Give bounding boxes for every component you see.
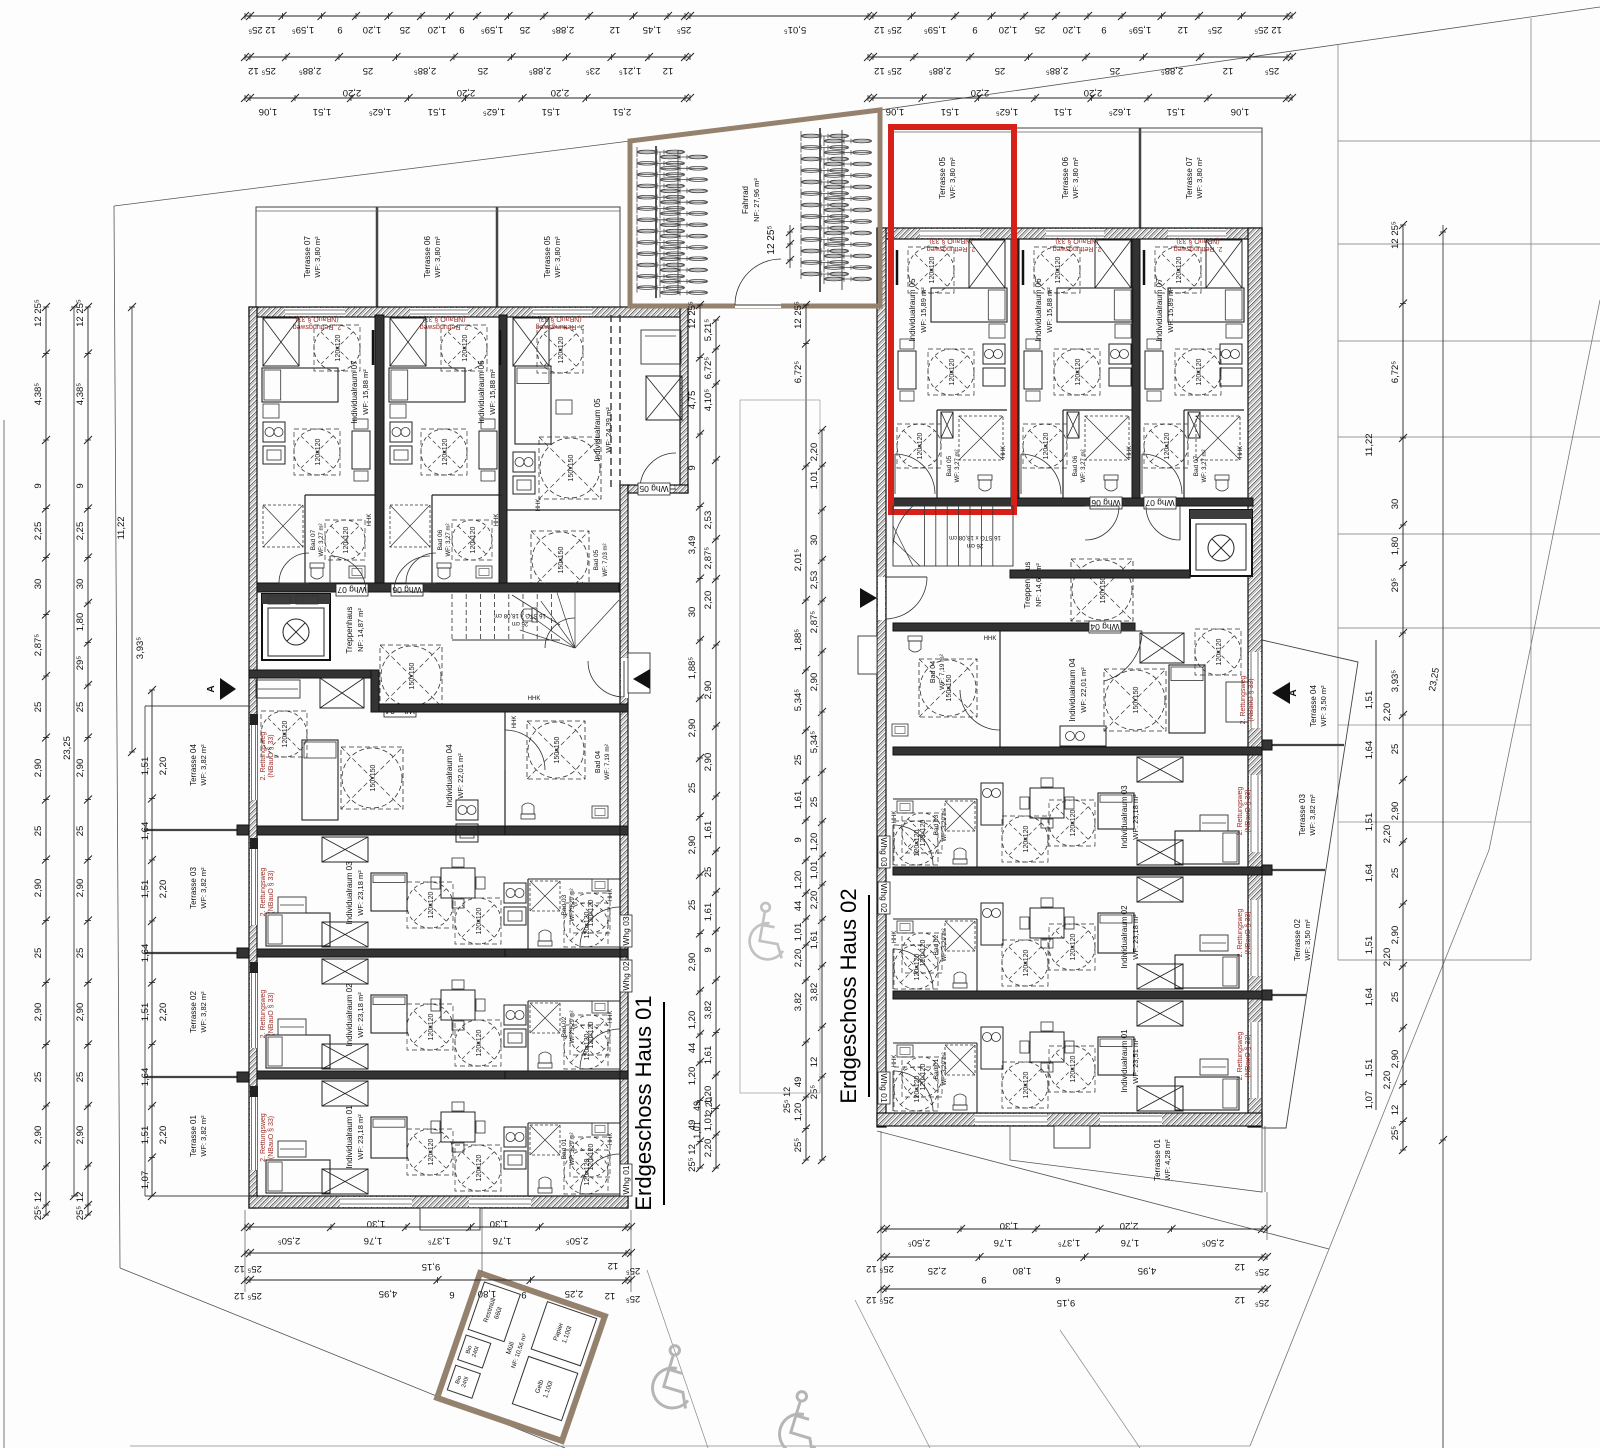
svg-text:2,90: 2,90 [75,759,86,778]
svg-text:2,25: 2,25 [75,522,86,541]
svg-text:1,61: 1,61 [703,1046,714,1065]
svg-text:2,20: 2,20 [809,891,820,910]
svg-text:2. Rettungsweg: 2. Rettungsweg [927,245,976,252]
svg-text:HHK: HHK [1001,446,1007,459]
svg-text:12: 12 [1178,24,1189,35]
svg-text:2,20: 2,20 [703,1139,714,1158]
svg-text:2,88⁵: 2,88⁵ [1161,65,1183,76]
svg-text:120x120: 120x120 [1055,256,1062,283]
svg-text:23,25: 23,25 [62,736,73,760]
svg-text:WF: 3,27 m²: WF: 3,27 m² [319,523,325,556]
svg-text:Whg 02: Whg 02 [879,883,889,913]
svg-text:2,20: 2,20 [703,591,714,610]
svg-text:1,01: 1,01 [809,861,820,880]
svg-text:16 STG x 18,08 cm: 16 STG x 18,08 cm [949,534,1001,540]
svg-text:25: 25 [33,948,44,959]
svg-text:150x150: 150x150 [554,736,561,763]
svg-text:2,90: 2,90 [33,1126,44,1145]
svg-text:4,75: 4,75 [687,391,698,410]
svg-text:1,20: 1,20 [687,1067,698,1086]
svg-text:25⁵: 25⁵ [1390,1126,1401,1141]
svg-text:25: 25 [33,826,44,837]
svg-text:Bad 07: Bad 07 [310,529,317,550]
svg-text:120x120: 120x120 [1196,358,1203,385]
svg-text:Fahrrad: Fahrrad [741,186,750,214]
svg-text:Individualraum 07: Individualraum 07 [350,360,359,424]
svg-text:Whg 06: Whg 06 [1091,498,1121,508]
svg-text:25⁵ 12: 25⁵ 12 [874,65,902,76]
svg-text:9: 9 [459,24,464,35]
svg-text:2. Rettungsweg: 2. Rettungsweg [1174,245,1223,252]
svg-text:120x120: 120x120 [335,334,342,361]
svg-text:12: 12 [663,65,674,76]
svg-text:49: 49 [793,1077,804,1088]
svg-text:WF: 3,29 m²: WF: 3,29 m² [570,1010,576,1043]
svg-text:WF: 3,82 m²: WF: 3,82 m² [199,867,208,909]
svg-text:(NBauO § 33): (NBauO § 33) [1245,1034,1252,1077]
svg-text:2,20: 2,20 [158,757,169,776]
svg-text:NF: 14,66 m²: NF: 14,66 m² [1034,563,1043,607]
svg-text:Terrasse 02: Terrasse 02 [1293,919,1302,961]
svg-text:1,51: 1,51 [140,1126,151,1145]
svg-text:1,80: 1,80 [1013,1265,1032,1276]
svg-text:WF: 3,29 m²: WF: 3,29 m² [570,1132,576,1165]
svg-text:12 25⁵: 12 25⁵ [1254,24,1282,35]
svg-text:6,72⁵: 6,72⁵ [793,361,804,383]
svg-text:150x150: 150x150 [558,546,565,573]
svg-text:Terrasse 04: Terrasse 04 [189,744,198,786]
svg-text:HHK: HHK [892,931,898,944]
svg-text:2,50⁵: 2,50⁵ [908,1237,930,1248]
svg-text:2,90: 2,90 [75,1003,86,1022]
svg-text:Bad 04: Bad 04 [930,661,937,683]
svg-text:4,38⁵: 4,38⁵ [33,383,44,405]
svg-text:25: 25 [75,948,86,959]
svg-text:(NBauO § 33): (NBauO § 33) [268,870,275,913]
svg-text:1,76: 1,76 [493,1235,512,1246]
svg-text:WF: 23,18 m²: WF: 23,18 m² [356,870,365,916]
svg-text:WF: 15,89 m²: WF: 15,89 m² [919,287,928,333]
svg-text:Bad 06: Bad 06 [1072,455,1079,476]
svg-text:25⁵: 25⁵ [809,1085,820,1100]
svg-text:2,87⁵: 2,87⁵ [33,634,44,656]
svg-text:2,25: 2,25 [928,1265,947,1276]
svg-text:1,30: 1,30 [367,1218,386,1229]
svg-text:HHK: HHK [892,1055,898,1068]
svg-text:9: 9 [793,837,804,842]
svg-text:Individualraum 01: Individualraum 01 [345,1105,354,1169]
svg-text:23⁵: 23⁵ [586,65,601,76]
svg-text:Individualraum 04: Individualraum 04 [1068,658,1077,722]
svg-text:16 STG x 18,08 cm: 16 STG x 18,08 cm [494,612,546,618]
svg-text:WF: 3,27 m²: WF: 3,27 m² [1081,449,1087,482]
svg-text:1,64: 1,64 [1364,741,1375,760]
svg-text:120x120: 120x120 [1164,432,1171,459]
svg-text:2,90: 2,90 [809,673,820,692]
svg-text:2,88⁵: 2,88⁵ [1046,65,1068,76]
svg-text:2,90: 2,90 [1390,926,1401,945]
svg-text:WF: 3,80 m²: WF: 3,80 m² [948,157,957,199]
svg-text:Whg 01: Whg 01 [621,1165,631,1195]
svg-text:Individualraum 07: Individualraum 07 [1155,278,1164,342]
svg-text:25⁵: 25⁵ [626,1293,641,1304]
svg-text:(NBauO § 33): (NBauO § 33) [1055,237,1098,244]
svg-text:Terrasse 05: Terrasse 05 [543,236,552,278]
svg-text:150x150: 150x150 [568,454,575,481]
svg-text:1,61: 1,61 [809,931,820,950]
svg-text:150x150: 150x150 [1133,686,1140,713]
svg-text:1,20: 1,20 [793,1103,804,1122]
svg-text:HHK: HHK [528,696,541,702]
svg-text:2,20: 2,20 [551,87,570,98]
svg-text:25⁵: 25⁵ [1255,1266,1270,1277]
svg-text:25: 25 [703,867,714,878]
svg-text:5,34⁵: 5,34⁵ [809,731,820,753]
svg-text:1,64: 1,64 [140,944,151,963]
svg-text:WF: 3,82 m²: WF: 3,82 m² [199,991,208,1033]
svg-text:30: 30 [75,579,86,590]
svg-text:120x120: 120x120 [584,1033,591,1060]
svg-text:WF: 3,80 m²: WF: 3,80 m² [553,236,562,278]
svg-text:2,20: 2,20 [1382,1071,1393,1090]
svg-text:1,01: 1,01 [692,1121,702,1139]
svg-text:26 cm: 26 cm [512,620,528,626]
svg-text:1,80: 1,80 [75,613,86,632]
svg-text:9: 9 [972,24,977,35]
svg-text:(NBauO § 33): (NBauO § 33) [1248,678,1255,721]
svg-text:25⁵ 12: 25⁵ 12 [866,1263,894,1274]
svg-text:25: 25 [363,65,374,76]
svg-text:2,90: 2,90 [703,753,714,772]
svg-text:1,30: 1,30 [1000,1220,1019,1231]
svg-text:2,87⁵: 2,87⁵ [703,547,714,569]
svg-text:120x120: 120x120 [1176,256,1183,283]
svg-text:1,61: 1,61 [793,791,804,810]
svg-text:Terrasse 03: Terrasse 03 [189,867,198,909]
svg-text:120x120: 120x120 [558,336,565,363]
svg-text:WF: 3,82 m²: WF: 3,82 m² [199,1115,208,1157]
svg-text:HHK: HHK [608,1133,614,1146]
svg-text:(NBauO § 33): (NBauO § 33) [422,315,465,322]
svg-text:2. Rettungsweg: 2. Rettungsweg [260,1113,267,1162]
svg-text:Terrasse 01: Terrasse 01 [189,1115,198,1157]
svg-text:2,88⁵: 2,88⁵ [929,65,951,76]
svg-text:25: 25 [687,783,698,794]
svg-text:HHK: HHK [984,636,997,642]
svg-text:1,62⁵: 1,62⁵ [483,106,505,117]
svg-text:Whg 05: Whg 05 [639,484,669,494]
svg-text:30: 30 [1390,499,1401,510]
svg-text:1,06: 1,06 [259,106,278,117]
svg-text:HHK: HHK [1127,446,1133,459]
svg-text:2,01⁵: 2,01⁵ [793,549,804,571]
svg-text:26 cm: 26 cm [967,542,983,548]
svg-text:Terrasse 02: Terrasse 02 [189,991,198,1033]
svg-text:1,64: 1,64 [1364,988,1375,1007]
svg-text:25⁵: 25⁵ [1265,65,1280,76]
svg-text:25⁵: 25⁵ [75,1206,86,1221]
svg-text:120x120: 120x120 [343,526,350,553]
svg-text:25⁵ 12: 25⁵ 12 [234,1263,262,1274]
svg-text:12 25⁵: 12 25⁵ [766,225,777,254]
svg-text:5,21⁵: 5,21⁵ [703,319,714,341]
svg-text:2,25: 2,25 [33,522,44,541]
svg-text:120x120: 120x120 [949,358,956,385]
svg-text:1,51: 1,51 [1364,813,1375,832]
svg-text:25⁵ 12: 25⁵ 12 [874,24,902,35]
svg-text:4,95: 4,95 [379,1288,398,1299]
svg-text:Individualraum 05: Individualraum 05 [593,398,602,462]
svg-text:120x120: 120x120 [462,334,469,361]
svg-text:2,90: 2,90 [33,759,44,778]
svg-text:9: 9 [981,1274,986,1285]
svg-text:3,93⁵: 3,93⁵ [135,637,146,659]
svg-text:2. Rettungsweg: 2. Rettungsweg [1237,909,1244,958]
svg-text:2,51: 2,51 [613,106,632,117]
svg-text:12: 12 [608,1260,619,1271]
svg-text:25: 25 [995,65,1006,76]
svg-text:Bad 05: Bad 05 [946,455,953,476]
svg-text:25⁵: 25⁵ [1208,24,1223,35]
svg-text:12 25⁵: 12 25⁵ [33,299,44,327]
svg-text:Individualraum 02: Individualraum 02 [345,983,354,1047]
svg-text:6,72⁵: 6,72⁵ [703,357,714,379]
svg-text:25⁵ 12: 25⁵ 12 [234,1290,262,1301]
svg-text:12: 12 [1390,1105,1401,1116]
svg-text:2,50⁵: 2,50⁵ [278,1235,300,1246]
svg-text:2. Rettungsweg: 2. Rettungsweg [293,323,342,330]
svg-text:1,21⁵: 1,21⁵ [619,65,641,76]
svg-text:44: 44 [793,901,804,912]
svg-text:HHK: HHK [1238,446,1244,459]
svg-text:49: 49 [692,1101,702,1111]
svg-text:120x120: 120x120 [1023,825,1030,852]
svg-text:1,51: 1,51 [140,1003,151,1022]
svg-text:25⁵: 25⁵ [793,1138,804,1153]
svg-text:3,49: 3,49 [687,536,698,555]
svg-text:WF: 23,18 m²: WF: 23,18 m² [1131,914,1140,960]
svg-text:Individualraum 01: Individualraum 01 [1120,1029,1129,1093]
svg-text:Whg 02: Whg 02 [621,961,631,991]
svg-text:4,10⁵: 4,10⁵ [703,389,714,411]
svg-text:2,50⁵: 2,50⁵ [1202,1237,1224,1248]
svg-text:2,25: 2,25 [565,1288,584,1299]
svg-text:1,51: 1,51 [1364,691,1375,710]
svg-text:25: 25 [520,24,531,35]
svg-text:Individualraum 02: Individualraum 02 [1120,905,1129,969]
svg-text:12: 12 [809,1057,820,1068]
svg-text:WF: 3,50 m²: WF: 3,50 m² [1303,919,1312,961]
svg-text:3,82: 3,82 [703,1001,714,1020]
svg-text:9: 9 [75,483,86,488]
svg-text:(NBauO § 33): (NBauO § 33) [268,1116,275,1159]
svg-text:1,51: 1,51 [542,106,561,117]
svg-text:25⁵: 25⁵ [626,1265,641,1276]
svg-text:(NBauO § 33): (NBauO § 33) [1245,911,1252,954]
svg-text:120x120: 120x120 [1216,638,1223,665]
svg-text:120x120: 120x120 [929,256,936,283]
svg-text:Bad 07: Bad 07 [1193,455,1200,476]
svg-text:2,53: 2,53 [809,571,820,590]
svg-text:2,20: 2,20 [158,880,169,899]
svg-text:WF: 7,19 m²: WF: 7,19 m² [939,653,946,690]
svg-text:1,51: 1,51 [140,880,151,899]
svg-text:(NBauO § 33): (NBauO § 33) [268,992,275,1035]
svg-text:25: 25 [75,826,86,837]
svg-text:WF: 4,28 m²: WF: 4,28 m² [1163,1139,1172,1181]
svg-text:12: 12 [1223,65,1234,76]
svg-text:Terrasse 07: Terrasse 07 [303,236,312,278]
svg-text:Bad 03: Bad 03 [561,894,568,915]
svg-text:6: 6 [1055,1274,1060,1285]
svg-text:1,61: 1,61 [703,903,714,922]
svg-text:2,20: 2,20 [1084,87,1103,98]
svg-text:1,62⁵: 1,62⁵ [369,106,391,117]
svg-text:120x120: 120x120 [315,438,322,465]
svg-text:(NBauO § 33): (NBauO § 33) [268,734,275,777]
svg-text:2,20: 2,20 [1382,825,1393,844]
svg-text:Whg 01: Whg 01 [879,1073,889,1103]
svg-text:1,01: 1,01 [809,471,820,490]
svg-text:9,15: 9,15 [422,1261,441,1272]
svg-text:25: 25 [793,755,804,766]
svg-text:25: 25 [478,65,489,76]
svg-text:WF: 23,18 m²: WF: 23,18 m² [1131,794,1140,840]
svg-text:30: 30 [687,607,698,618]
svg-text:Bad 04: Bad 04 [595,751,602,773]
svg-text:HHK: HHK [512,716,518,729]
svg-text:25⁵ 12: 25⁵ 12 [782,1087,792,1113]
svg-text:HHK: HHK [367,514,373,527]
svg-text:HHK: HHK [494,514,500,527]
svg-text:1,62⁵: 1,62⁵ [996,106,1018,117]
svg-text:2,90: 2,90 [75,1126,86,1145]
svg-text:1,07: 1,07 [140,1171,151,1190]
svg-text:WF: 3,80 m²: WF: 3,80 m² [1195,157,1204,199]
svg-text:2,90: 2,90 [1390,1050,1401,1069]
svg-text:12 25⁵: 12 25⁵ [793,301,804,329]
svg-text:Terrasse 06: Terrasse 06 [423,236,432,278]
svg-text:2,88⁵: 2,88⁵ [299,65,321,76]
svg-text:Erdgeschoss Haus 02: Erdgeschoss Haus 02 [836,888,861,1103]
svg-text:120x120: 120x120 [584,911,591,938]
svg-text:6,72⁵: 6,72⁵ [1390,361,1401,383]
svg-text:1,80: 1,80 [1390,537,1401,556]
svg-text:2,90: 2,90 [75,879,86,898]
svg-text:44: 44 [687,1043,698,1054]
svg-text:2. Rettungsweg: 2. Rettungsweg [1240,676,1247,725]
svg-text:WF: 23,18 m²: WF: 23,18 m² [356,992,365,1038]
svg-text:1,76: 1,76 [364,1235,383,1246]
svg-text:1,20: 1,20 [363,24,382,35]
svg-text:1,20: 1,20 [1063,24,1082,35]
svg-text:Treppenhaus: Treppenhaus [1023,562,1032,609]
svg-text:25: 25 [1390,992,1401,1003]
svg-text:25: 25 [809,797,820,808]
svg-text:2,20: 2,20 [809,443,820,462]
svg-text:120x120: 120x120 [1023,1071,1030,1098]
svg-text:Bad 02: Bad 02 [561,1016,568,1037]
svg-text:11,22: 11,22 [116,516,127,539]
svg-text:3,82: 3,82 [809,983,820,1002]
svg-text:4,38⁵: 4,38⁵ [75,383,86,405]
svg-text:2,90: 2,90 [33,879,44,898]
svg-text:HHK: HHK [608,889,614,902]
svg-text:Individualraum 03: Individualraum 03 [345,861,354,925]
svg-text:120x120: 120x120 [428,891,435,918]
svg-text:WF: 3,29 m²: WF: 3,29 m² [570,888,576,921]
svg-text:150x150: 150x150 [409,662,416,689]
svg-text:9,15: 9,15 [1057,1297,1076,1308]
svg-text:9: 9 [687,465,698,470]
svg-text:12: 12 [1235,1294,1246,1305]
svg-text:Erdgeschoss Haus 01: Erdgeschoss Haus 01 [631,995,656,1210]
svg-text:3,93⁵: 3,93⁵ [1390,670,1401,692]
svg-text:120x120: 120x120 [1043,432,1050,459]
svg-text:WF: 15,88 m²: WF: 15,88 m² [1045,287,1054,333]
svg-text:12 25⁵: 12 25⁵ [75,299,86,327]
svg-text:WF: 23,18 m²: WF: 23,18 m² [356,1114,365,1160]
svg-text:2,90: 2,90 [1390,802,1401,821]
svg-text:WF: 15,88 m²: WF: 15,88 m² [488,369,497,415]
svg-text:NF: 27,96 m²: NF: 27,96 m² [752,178,761,222]
svg-text:Whg 03: Whg 03 [879,837,889,867]
svg-text:WF: 3,29 m²: WF: 3,29 m² [942,808,948,841]
svg-text:2. Rettungsweg: 2. Rettungsweg [260,990,267,1039]
svg-text:2. Rettungsweg: 2. Rettungsweg [1237,1032,1244,1081]
svg-text:9: 9 [521,1289,526,1300]
svg-text:1,51: 1,51 [941,106,960,117]
svg-text:1,20: 1,20 [809,833,820,852]
svg-text:120x120: 120x120 [282,720,289,747]
svg-text:12: 12 [605,1290,616,1301]
svg-text:2,50⁵: 2,50⁵ [566,1235,588,1246]
svg-text:1,51: 1,51 [1167,106,1186,117]
svg-text:HHK: HHK [892,811,898,824]
svg-text:WF: 3,27 m²: WF: 3,27 m² [446,523,452,556]
svg-text:2,88⁵: 2,88⁵ [552,24,574,35]
svg-text:WF: 7,19 m²: WF: 7,19 m² [604,743,611,780]
svg-text:25: 25 [75,1072,86,1083]
svg-text:12 25⁵: 12 25⁵ [687,301,698,329]
svg-text:Bad 05: Bad 05 [593,549,600,570]
svg-text:1,62⁵: 1,62⁵ [1109,106,1131,117]
svg-text:9: 9 [33,483,44,488]
svg-text:WF: 3,27 m²: WF: 3,27 m² [955,449,961,482]
svg-text:1,88⁵: 1,88⁵ [793,629,804,651]
svg-text:25: 25 [1035,24,1046,35]
svg-text:WF: 15,88 m²: WF: 15,88 m² [361,369,370,415]
svg-text:1,88⁵: 1,88⁵ [687,657,698,679]
svg-text:11,22: 11,22 [1364,433,1375,456]
svg-text:150x150: 150x150 [370,764,377,791]
svg-text:1,51: 1,51 [140,757,151,776]
svg-text:1,64: 1,64 [140,1068,151,1087]
svg-text:2,20: 2,20 [343,87,362,98]
svg-text:Terrasse 01: Terrasse 01 [1153,1139,1162,1181]
svg-text:2,20: 2,20 [1120,1220,1139,1231]
svg-text:2,20: 2,20 [971,87,990,98]
svg-text:120x120: 120x120 [1070,809,1077,836]
svg-text:120x120: 120x120 [476,1029,483,1056]
svg-text:29⁵: 29⁵ [75,656,86,671]
svg-text:A: A [206,685,217,692]
svg-text:1,30: 1,30 [490,1218,509,1229]
svg-text:2,53: 2,53 [703,511,714,530]
svg-text:Whg 04: Whg 04 [1090,622,1120,632]
svg-text:2,20: 2,20 [457,87,476,98]
svg-text:WF: 22,01 m²: WF: 22,01 m² [1079,667,1088,713]
